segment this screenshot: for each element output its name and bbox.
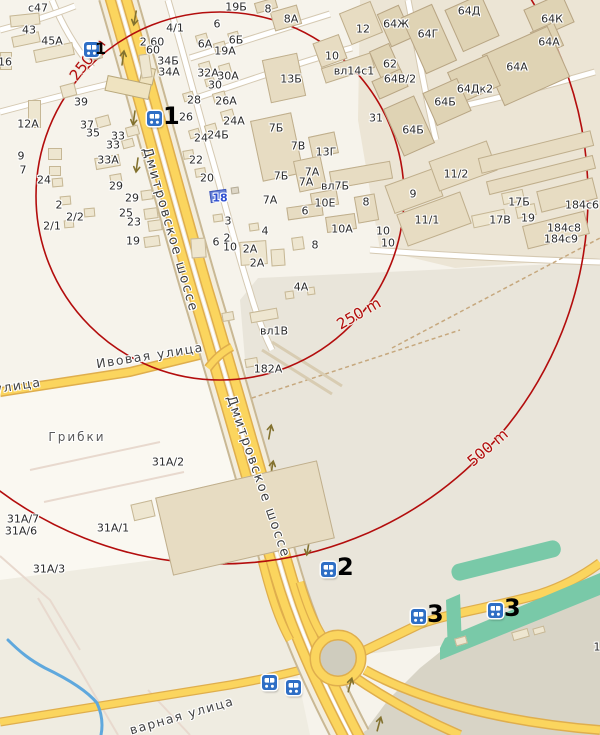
map-label: 184с9 [544, 234, 578, 245]
map-label: 29 [109, 181, 123, 192]
map-label: 64К [541, 14, 563, 25]
map-label: 8 [363, 197, 370, 208]
map-label: 10 [376, 226, 390, 237]
map-label: 184с6 [565, 200, 599, 211]
map-label: 33А [97, 155, 119, 166]
building [291, 236, 305, 251]
map-label: 17Б [508, 197, 530, 208]
map-label: 8 [312, 240, 319, 251]
map-label: 64Д [458, 6, 481, 17]
bus-icon[interactable] [286, 680, 301, 695]
bus-stop-number: 3 [504, 596, 521, 620]
map-label: 1 [594, 642, 600, 653]
map-label: 17В [489, 215, 511, 226]
map-label: 30 [208, 80, 222, 91]
map-label: 2/1 [43, 221, 61, 232]
map-label: 3 [225, 216, 232, 227]
building [231, 186, 240, 194]
building [212, 213, 223, 222]
building [48, 148, 62, 160]
map-label: 2/2 [66, 212, 84, 223]
map-label: 24А [223, 116, 245, 127]
map-label: 64Б [402, 125, 424, 136]
map-label: 12 [356, 24, 370, 35]
map-label: 6 [214, 19, 221, 30]
map-label: 4А [294, 282, 309, 293]
map-label: 31А/3 [33, 564, 65, 575]
map-label: 62 [383, 59, 397, 70]
map-label: 64Дк2 [457, 84, 493, 95]
map-label: 11/2 [444, 169, 469, 180]
map-label: 22 [189, 155, 203, 166]
bus-stop-marker[interactable]: 1 [84, 42, 99, 57]
map-label: 13Г [316, 147, 337, 158]
map-label: 19 [521, 213, 535, 224]
bus-stop-number: 1 [95, 41, 106, 57]
map-label: 31А/2 [152, 457, 184, 468]
map-label: 9 [410, 189, 417, 200]
map-label: 19Б [225, 2, 247, 13]
map-label: 13Б [280, 74, 302, 85]
bus-stop-marker[interactable]: 3 [488, 603, 503, 618]
map-label: 8А [284, 14, 299, 25]
map-label: 2А [243, 244, 258, 255]
map-label: 64В/2 [384, 74, 416, 85]
map-label: 64Г [418, 29, 439, 40]
map-label: 19А [214, 46, 236, 57]
map-label: 19 [126, 236, 140, 247]
bus-icon[interactable] [321, 562, 336, 577]
map-label: 20 [200, 173, 214, 184]
bus-stop-marker[interactable] [262, 675, 277, 690]
map-label: вл1В [260, 326, 288, 337]
map-label: 31А/7 [7, 514, 39, 525]
map-label: 32А [197, 68, 219, 79]
map-label: 9 [18, 151, 25, 162]
map-label: 7А [263, 195, 278, 206]
map-label: 11/1 [415, 215, 440, 226]
map-label: 7В [291, 141, 306, 152]
map-label: 10 [223, 242, 237, 253]
map-label: 24 [194, 133, 208, 144]
building [248, 222, 259, 231]
map-label: 26 [179, 112, 193, 123]
map-label: 64Ж [383, 19, 409, 30]
map-label: 29 [125, 193, 139, 204]
map-label: 10Е [315, 198, 336, 209]
map-label: 16 [0, 57, 12, 68]
map-label: 7А [299, 177, 314, 188]
bus-stop-marker[interactable]: 2 [321, 562, 336, 577]
building [143, 235, 160, 248]
map-label: 10А [331, 224, 353, 235]
building [52, 178, 64, 188]
map-label: 10 [325, 51, 339, 62]
map-label: 18 [212, 193, 227, 204]
map-base-layers [0, 0, 600, 735]
map-label: 34А [158, 67, 180, 78]
bus-stop-number: 3 [427, 602, 444, 626]
map-label: 4/1 [166, 23, 184, 34]
map-label: 182А [254, 364, 283, 375]
map-label: 39 [74, 97, 88, 108]
map-label: 4 [262, 226, 269, 237]
map-label: 7Б [269, 123, 284, 134]
map-label: 31А/6 [5, 526, 37, 537]
map-label: 6 [302, 206, 309, 217]
bus-icon[interactable] [411, 609, 426, 624]
building [190, 238, 206, 259]
building [270, 249, 285, 267]
map-label: 7 [20, 165, 27, 176]
bus-stop-marker[interactable]: 3 [411, 609, 426, 624]
map-label: 45А [41, 36, 63, 47]
bus-icon[interactable] [488, 603, 503, 618]
bus-stop-marker[interactable] [286, 680, 301, 695]
map-label: вл7Б [321, 181, 349, 192]
bus-icon[interactable] [262, 675, 277, 690]
map-label: 33 [106, 140, 120, 151]
map-label: 24 [37, 175, 51, 186]
map-label: 6 [213, 237, 220, 248]
bus-stop-marker[interactable]: 1 [147, 111, 162, 126]
bus-stop-number: 1 [163, 104, 180, 128]
map-label: 7Б [274, 171, 289, 182]
map-label: 31 [369, 113, 383, 124]
building [84, 208, 96, 218]
map-label: 24Б [207, 130, 229, 141]
map-label: Грибки [48, 431, 105, 443]
map-label: 64А [538, 37, 560, 48]
map-label: вл14с1 [334, 66, 375, 77]
map-label: 64А [506, 62, 528, 73]
map-label: 28 [187, 95, 201, 106]
map-canvas[interactable]: с474345А16393735333333А12А972422/22/1292… [0, 0, 600, 735]
roundabout [315, 635, 361, 681]
map-label: 35 [86, 128, 100, 139]
map-label: 2А [250, 258, 265, 269]
map-label: 64Б [434, 97, 456, 108]
map-label: 31А/1 [97, 523, 129, 534]
bus-stop-number: 2 [337, 555, 354, 579]
map-label: 12А [17, 119, 39, 130]
map-label: 23 [127, 217, 141, 228]
map-label: 43 [22, 25, 36, 36]
map-label: 10 [381, 238, 395, 249]
map-label: с47 [28, 3, 48, 14]
map-label: 2 [56, 200, 63, 211]
bus-icon[interactable] [147, 111, 162, 126]
map-label: 6А [198, 39, 213, 50]
map-label: 8 [265, 4, 272, 15]
map-label: 26А [215, 96, 237, 107]
